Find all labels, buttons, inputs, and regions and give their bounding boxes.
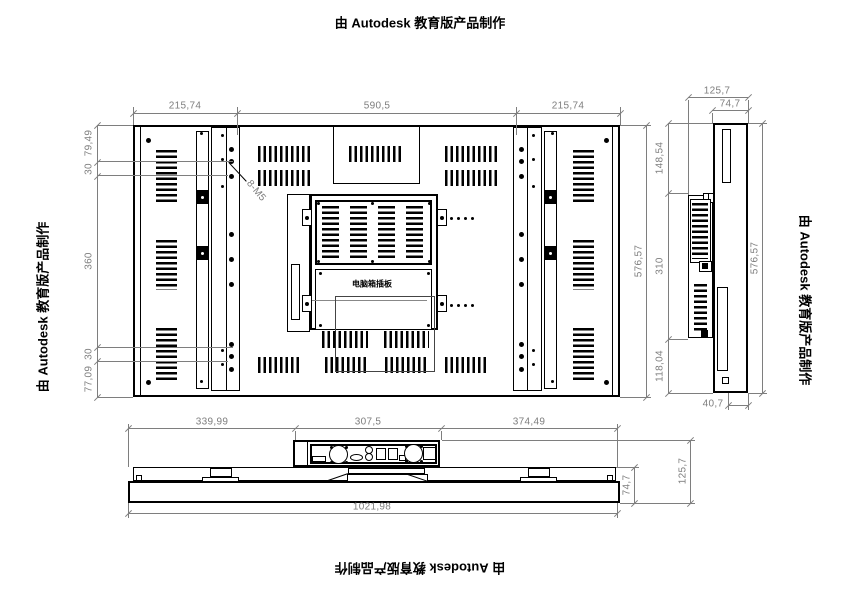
extension-line [97,397,133,398]
screw-dot [146,138,151,143]
nut-center-dot [549,252,552,255]
screw-dot [229,257,234,262]
screw-dot [420,460,423,463]
vent-vertical-slats [384,331,429,348]
dimension-label: 118,04 [655,350,666,382]
dimension-label: 576,57 [750,242,761,274]
io-square-port [376,448,386,460]
screw-dot [450,217,453,220]
panel-line [226,127,227,391]
screw-dot [221,134,224,137]
dimension-label: 电脑箱插板 [352,279,392,290]
extension-line [97,175,228,176]
watermark-bottom: 由 Autodesk 教育版产品制作 [335,560,505,579]
extension-line [728,393,729,410]
screw-dot [371,202,374,205]
side-top-slot [722,129,731,183]
extension-line [128,428,617,429]
vent-horizontal-slats [694,284,707,332]
watermark-left: 由 Autodesk 教育版产品制作 [33,222,52,392]
dimension-label: 339,99 [196,417,228,428]
dimension-label: 374,49 [513,417,545,428]
screw-dot [519,342,524,347]
dimension-label: 590,5 [364,101,391,112]
bottom-lower-band [128,481,620,503]
extension-line [762,123,763,393]
extension-line [441,431,442,440]
vent-horizontal-slats [322,206,339,258]
screw-dot [427,272,430,275]
dimension-label: 307,5 [355,417,382,428]
dimension-label: 310 [655,257,666,275]
nut-center-dot [201,196,204,199]
screw-dot [317,260,320,263]
screw-dot [229,354,234,359]
dimension-label: 30 [84,163,95,175]
screw-dot [471,304,474,307]
vent-horizontal-slats [692,203,708,259]
screw-dot [519,232,524,237]
dimension-label: 79,49 [84,130,95,157]
screw-dot [532,158,535,161]
screw-dot [146,380,151,385]
screw-dot [519,174,524,179]
extension-line [646,125,647,397]
dimension-label: 576,57 [634,245,645,277]
pc-box-left-slot [291,264,300,320]
extension-line [668,123,713,124]
screw-dot [345,461,348,464]
vent-horizontal-slats [406,206,423,258]
left-rail-outer [196,131,209,389]
vent-horizontal-slats [156,328,177,382]
screw-dot [345,446,348,449]
extension-line [668,339,688,340]
io-small-rect [312,456,326,462]
vent-horizontal-slats [573,240,594,290]
extension-line [668,123,669,393]
screw-dot [532,134,535,137]
vent-vertical-slats [258,357,300,373]
io-square-port [388,448,398,460]
extension-line [97,125,98,397]
vent-horizontal-slats [573,150,594,202]
dimension-label: 74,7 [622,475,633,496]
dimension-label: 1021,98 [353,502,391,513]
watermark-right: 由 Autodesk 教育版产品制作 [797,215,816,385]
screw-dot [229,282,234,287]
screw-dot [519,282,524,287]
dimension-label: 215,74 [169,101,201,112]
extension-line [712,110,748,111]
screw-dot [464,217,467,220]
mount-foot [528,468,550,477]
extension-line [97,125,133,126]
extension-line [617,424,618,467]
extension-line [133,113,620,114]
extension-line [748,393,749,410]
bk [701,330,708,337]
screw-dot [319,324,322,327]
screw-dot [330,461,333,464]
screw-dot [519,367,524,372]
screw-dot [464,304,467,307]
extension-line [634,467,635,503]
screw-dot [532,185,535,188]
mount-foot-flange [520,477,557,482]
vent-horizontal-slats [573,328,594,382]
screw-dot [440,216,444,220]
cad-drawing-canvas: 由 Autodesk 教育版产品制作 由 Autodesk 教育版产品制作 由 … [0,0,850,600]
screw-dot [405,445,408,448]
screw-dot [532,349,535,352]
vent-vertical-slats [445,357,489,373]
dimension-label: 77,09 [84,366,95,393]
screw-dot [221,349,224,352]
screw-dot [427,324,430,327]
extension-line [690,440,691,503]
io-rect-port [423,447,436,460]
extension-line [97,347,233,348]
watermark-top: 由 Autodesk 教育版产品制作 [335,13,505,32]
dimension-label: 360 [84,252,95,270]
screw-dot [519,159,524,164]
dimension-label: 215,74 [552,101,584,112]
screw-dot [200,132,203,135]
panel-line [140,127,141,395]
screw-dot [457,304,460,307]
screw-dot [604,380,609,385]
screw-dot [532,363,535,366]
extension-line [668,193,688,194]
corner-notch [136,475,142,481]
screw-dot [519,147,524,152]
screw-dot [405,460,408,463]
screw-dot [519,257,524,262]
right-rail-outer [544,131,557,389]
screw-dot [317,202,320,205]
panel-line [527,127,528,391]
dimension-label: 30 [84,348,95,360]
mount-foot [210,468,232,477]
vent-vertical-slats [445,170,497,186]
side-bottom-slot [717,287,728,371]
extension-line [620,107,621,125]
screw-dot [200,380,203,383]
screw-dot [371,260,374,263]
extension-line [712,113,713,123]
screw-dot [305,302,309,306]
extension-line [128,424,129,467]
screw-dot [428,202,431,205]
extension-line [728,405,748,406]
extension-line [295,431,296,440]
screw-dot [319,272,322,275]
corner-notch [607,475,613,481]
screw-dot [229,147,234,152]
nut-center-dot [201,252,204,255]
dimension-label: 125,7 [704,86,731,97]
bk [702,263,708,269]
panel-line [307,440,308,467]
extension-line [668,393,713,394]
screw-dot [229,174,234,179]
dimension-label: 40,7 [703,399,724,410]
vent-vertical-slats [258,146,310,162]
screw-dot [229,367,234,372]
io-oval-port [350,454,363,461]
screw-dot [440,302,444,306]
screw-dot [330,446,333,449]
extension-line [748,123,767,124]
screw-dot [221,363,224,366]
extension-line [128,513,617,514]
screw-dot [221,185,224,188]
io-round-port [365,453,373,461]
screw-dot [604,138,609,143]
panel-line [612,127,613,395]
screw-dot [551,380,554,383]
screw-dot [471,217,474,220]
extension-line [97,361,228,362]
vent-vertical-slats [445,146,497,162]
vent-vertical-slats [258,170,310,186]
vent-vertical-slats [322,331,368,348]
extension-line [688,100,689,195]
vent-vertical-slats [349,146,401,162]
vent-horizontal-slats [156,150,177,202]
dimension-label: 74,7 [720,99,741,110]
screw-dot [450,304,453,307]
nut-center-dot [549,196,552,199]
screw-dot [229,232,234,237]
extension-line [748,393,767,394]
screw-dot [519,354,524,359]
screw-dot [551,132,554,135]
mount-foot-flange [202,477,239,482]
vent-horizontal-slats [156,240,177,290]
vent-horizontal-slats [378,206,395,258]
extension-line [133,107,134,125]
screw-dot [305,216,309,220]
side-small-square [722,377,729,384]
extension-line [442,440,695,441]
screw-dot [457,217,460,220]
screw-dot [428,260,431,263]
extension-line [97,161,233,162]
dimension-label: 148,54 [655,142,666,174]
dimension-label: 125,7 [678,458,689,485]
vent-horizontal-slats [350,206,367,258]
extension-line [620,503,695,504]
